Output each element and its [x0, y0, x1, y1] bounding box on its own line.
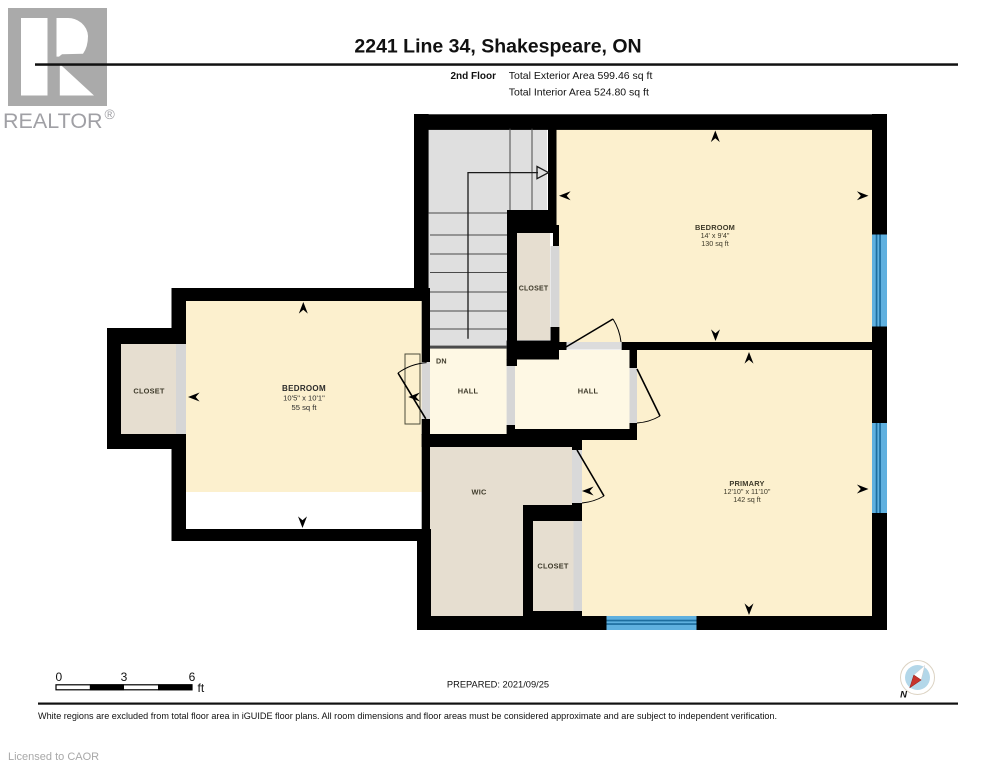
- svg-text:HALL: HALL: [458, 387, 479, 396]
- svg-text:CLOSET: CLOSET: [537, 562, 568, 571]
- svg-text:PREPARED: 2021/09/25: PREPARED: 2021/09/25: [447, 680, 549, 690]
- svg-text:Total Exterior Area 599.46 sq: Total Exterior Area 599.46 sq ft: [509, 70, 653, 82]
- svg-text:142 sq ft: 142 sq ft: [733, 495, 761, 504]
- svg-text:HALL: HALL: [578, 387, 599, 396]
- svg-text:130 sq ft: 130 sq ft: [701, 239, 729, 248]
- svg-text:ft: ft: [198, 681, 205, 695]
- svg-text:DN: DN: [436, 357, 447, 366]
- svg-text:Licensed to CAOR: Licensed to CAOR: [8, 751, 99, 763]
- svg-text:0: 0: [56, 670, 63, 684]
- svg-text:BEDROOM: BEDROOM: [282, 384, 326, 393]
- svg-text:Total Interior Area 524.80 sq: Total Interior Area 524.80 sq ft: [509, 86, 649, 98]
- svg-text:REALTOR: REALTOR: [3, 109, 103, 133]
- svg-text:®: ®: [105, 106, 116, 122]
- svg-text:55 sq ft: 55 sq ft: [292, 403, 318, 412]
- svg-text:CLOSET: CLOSET: [519, 286, 549, 293]
- svg-text:2241 Line 34, Shakespeare, ON: 2241 Line 34, Shakespeare, ON: [354, 36, 641, 58]
- svg-text:White regions are excluded fro: White regions are excluded from total fl…: [38, 711, 777, 721]
- svg-text:3: 3: [121, 670, 128, 684]
- svg-text:WIC: WIC: [472, 488, 487, 497]
- svg-text:2nd Floor: 2nd Floor: [450, 71, 496, 82]
- svg-text:10'5" x 10'1": 10'5" x 10'1": [283, 394, 325, 403]
- svg-text:N: N: [900, 690, 908, 701]
- svg-text:6: 6: [189, 670, 196, 684]
- svg-text:CLOSET: CLOSET: [133, 387, 164, 396]
